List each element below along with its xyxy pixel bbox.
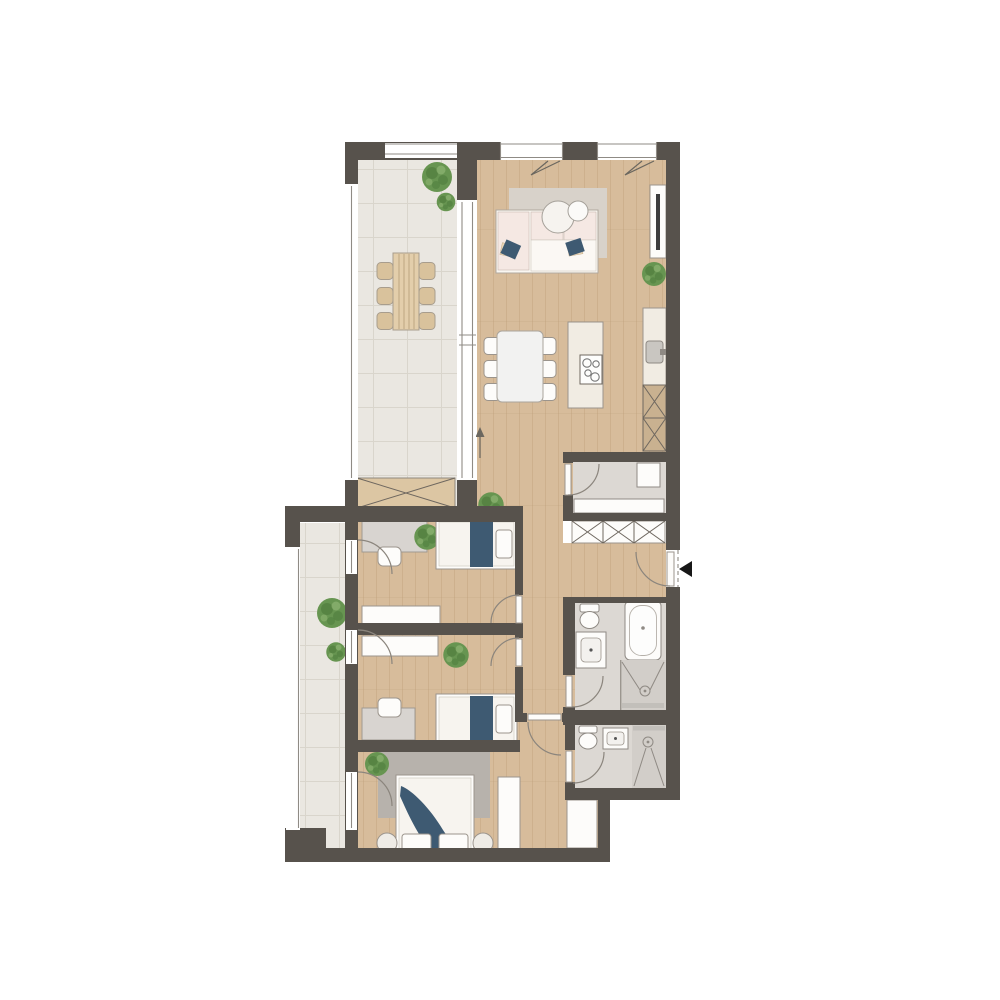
plant-icon <box>437 193 456 212</box>
dining-set <box>484 331 556 402</box>
plant-icon <box>642 262 666 286</box>
door-leaf <box>667 552 674 586</box>
shower <box>632 725 666 788</box>
tv-screen <box>656 194 660 250</box>
door-leaf <box>528 714 561 720</box>
balcony-railing-left <box>286 547 300 830</box>
wardrobe <box>498 777 520 855</box>
outdoor-chair <box>419 288 435 305</box>
floor-plan-page <box>0 0 1000 1000</box>
bed-blanket <box>470 696 493 742</box>
terrace-railing-left <box>345 184 358 480</box>
bathtub <box>625 601 661 660</box>
plant-icon <box>326 642 346 662</box>
bed-pillow <box>496 530 512 558</box>
terrace-railing-top <box>385 143 457 158</box>
shower-glass <box>633 726 665 731</box>
outdoor-dining-table <box>393 253 419 330</box>
shower-glass <box>622 703 664 708</box>
door-leaf <box>566 676 572 707</box>
plant-icon <box>422 162 452 192</box>
wardrobe <box>567 800 597 848</box>
wardrobe <box>362 636 438 656</box>
sink <box>603 728 628 749</box>
outdoor-chair <box>377 288 393 305</box>
balcony-floor <box>300 523 345 848</box>
shower <box>620 660 666 710</box>
single-bed <box>436 519 517 569</box>
toilet <box>580 604 599 629</box>
door-leaf <box>516 639 522 666</box>
desk-chair <box>378 698 401 717</box>
entrance-marker-icon <box>679 561 692 577</box>
single-bed <box>436 694 517 744</box>
outdoor-chair <box>377 263 393 280</box>
faucet-icon <box>660 349 666 355</box>
floor-plan-canvas <box>0 0 1000 1000</box>
door-leaf <box>566 751 572 782</box>
terrace-glazed-wall <box>459 200 476 480</box>
outdoor-chair <box>419 313 435 330</box>
plant-icon <box>365 752 389 776</box>
utility-counter <box>574 499 664 513</box>
double-bed <box>396 775 474 857</box>
plant-icon <box>317 598 347 628</box>
plant-icon <box>443 642 469 668</box>
door-leaf <box>565 464 571 495</box>
outdoor-chair <box>419 263 435 280</box>
door-leaf <box>516 596 522 623</box>
round-coffee-table <box>568 201 588 221</box>
outdoor-chair <box>377 313 393 330</box>
bed-pillow <box>496 705 512 733</box>
wardrobe <box>362 606 440 625</box>
bed-blanket <box>470 521 493 567</box>
vanity-sink <box>576 632 606 668</box>
toilet <box>579 726 597 749</box>
dining-table <box>497 331 543 402</box>
washing-machine <box>637 463 660 487</box>
terrace-floor <box>358 160 457 506</box>
